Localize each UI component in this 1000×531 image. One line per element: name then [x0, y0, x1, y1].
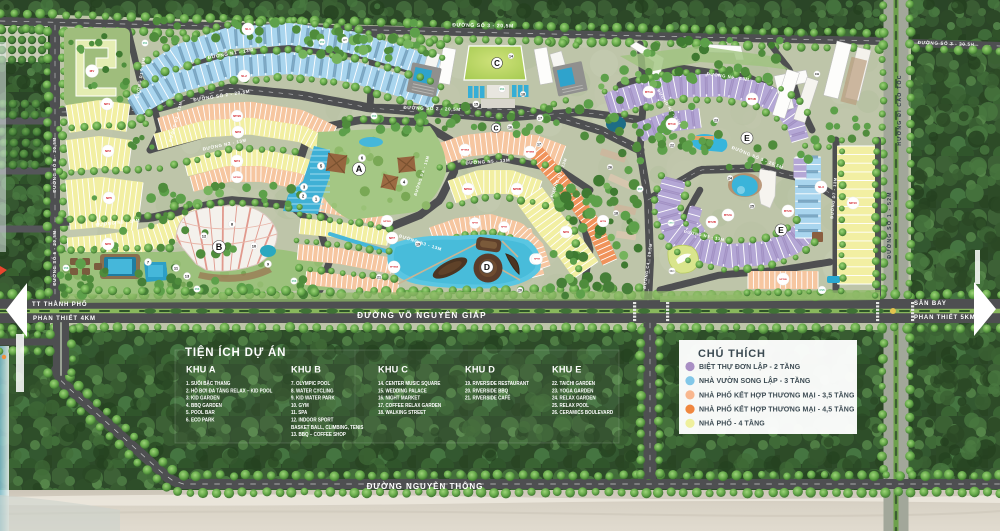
svg-text:CV2: CV2 [320, 42, 325, 44]
svg-text:D: D [484, 262, 490, 272]
svg-text:NPTM: NPTM [600, 221, 606, 223]
svg-text:6. ECO PARK: 6. ECO PARK [186, 417, 215, 424]
svg-text:NP1: NP1 [104, 102, 110, 106]
svg-text:5. POOL BAR: 5. POOL BAR [186, 410, 215, 417]
svg-text:1. SUỐI BẬC THANG: 1. SUỐI BẬC THANG [186, 379, 230, 387]
svg-text:NPTM: NPTM [534, 259, 540, 261]
svg-text:NP8A: NP8A [464, 187, 473, 191]
svg-text:CH: CH [815, 72, 819, 76]
svg-text:BT2C: BT2C [784, 209, 793, 213]
svg-text:KHU A: KHU A [186, 365, 216, 375]
svg-text:NP4: NP4 [234, 159, 240, 163]
svg-text:NP5: NP5 [106, 196, 112, 200]
svg-text:BT2A: BT2A [724, 213, 733, 217]
svg-text:NPTM5B: NPTM5B [526, 152, 535, 154]
svg-text:23: 23 [714, 118, 718, 122]
svg-text:CHÚ THÍCH: CHÚ THÍCH [698, 347, 766, 360]
svg-text:22. TAICHI GARDEN: 22. TAICHI GARDEN [552, 381, 595, 388]
svg-text:25. RELAX POOL: 25. RELAX POOL [552, 402, 590, 409]
svg-text:CV8: CV8 [64, 268, 69, 270]
svg-text:23. YOGA GARDEN: 23. YOGA GARDEN [552, 388, 594, 395]
svg-text:17: 17 [537, 142, 541, 146]
svg-text:BASKET BALL, CLIMBING, TENIS: BASKET BALL, CLIMBING, TENIS [291, 424, 364, 431]
svg-text:SL3: SL3 [818, 185, 824, 189]
svg-text:KHU D: KHU D [465, 365, 495, 375]
svg-text:ĐƯỜNG VÕ NGUYÊN GIÁP: ĐƯỜNG VÕ NGUYÊN GIÁP [357, 309, 487, 320]
svg-text:NP2: NP2 [105, 149, 111, 153]
svg-text:HƯỚNG ĐI CAO TỐC: HƯỚNG ĐI CAO TỐC [895, 74, 903, 145]
svg-text:15. WEDDING PALACE: 15. WEDDING PALACE [378, 388, 427, 395]
svg-text:NP3: NP3 [235, 130, 241, 134]
svg-text:CV1: CV1 [143, 43, 148, 45]
svg-text:CV6: CV6 [195, 289, 200, 291]
svg-text:ĐƯỜNG SỐ 5 - 20,5M: ĐƯỜNG SỐ 5 - 20,5M [52, 230, 57, 285]
svg-text:E: E [778, 225, 784, 235]
svg-text:26: 26 [608, 165, 612, 169]
svg-text:4. BBQ GARDEN: 4. BBQ GARDEN [186, 402, 222, 409]
svg-text:NPTM2: NPTM2 [233, 177, 241, 179]
svg-text:NP10: NP10 [849, 201, 857, 205]
svg-text:NPTM8: NPTM8 [779, 279, 787, 281]
svg-text:17: 17 [538, 116, 542, 120]
svg-text:7. OLYMPIC POOL: 7. OLYMPIC POOL [291, 381, 331, 388]
svg-text:10. GYM: 10. GYM [291, 402, 309, 409]
svg-text:17. COFFEE RELAX GARDEN: 17. COFFEE RELAX GARDEN [378, 402, 441, 409]
svg-text:A: A [356, 164, 363, 174]
svg-text:21. RIVERSIDE CAFÉ: 21. RIVERSIDE CAFÉ [465, 393, 511, 402]
svg-text:BT1B: BT1B [748, 97, 757, 101]
svg-text:C: C [494, 59, 500, 68]
svg-text:TT THÀNH PHỐ: TT THÀNH PHỐ [32, 301, 87, 308]
svg-text:16: 16 [508, 125, 512, 129]
svg-text:13: 13 [185, 273, 190, 278]
svg-text:24: 24 [728, 176, 732, 180]
svg-text:KHU B: KHU B [291, 365, 321, 375]
svg-text:BT1C: BT1C [668, 122, 677, 126]
svg-text:CV6: CV6 [292, 281, 297, 283]
svg-text:25: 25 [750, 204, 754, 208]
svg-text:24. RELAX GARDEN: 24. RELAX GARDEN [552, 395, 596, 402]
svg-text:22: 22 [670, 143, 674, 147]
svg-text:21: 21 [377, 275, 381, 279]
svg-text:3. KID GARDEN: 3. KID GARDEN [186, 395, 220, 402]
svg-text:TIỆN ÍCH DỰ ÁN: TIỆN ÍCH DỰ ÁN [185, 346, 286, 359]
svg-text:BT1A: BT1A [645, 90, 654, 94]
svg-text:18: 18 [521, 92, 525, 96]
svg-text:10: 10 [252, 243, 257, 248]
svg-text:NPTM4A: NPTM4A [390, 266, 399, 269]
svg-text:HT: HT [343, 38, 347, 42]
svg-text:NPTM5A: NPTM5A [461, 149, 470, 152]
svg-text:CV7: CV7 [638, 189, 643, 191]
svg-text:NPTM1: NPTM1 [233, 115, 242, 118]
svg-text:NPTM: NPTM [501, 227, 507, 229]
svg-text:BT2B: BT2B [708, 220, 717, 224]
svg-text:B: B [216, 242, 223, 252]
svg-text:CV5: CV5 [819, 288, 825, 292]
svg-text:CV3: CV3 [372, 116, 377, 118]
svg-text:8. WATER CYCLING: 8. WATER CYCLING [291, 388, 334, 395]
svg-text:NPTM: NPTM [472, 223, 478, 225]
svg-text:CV4: CV4 [500, 88, 505, 91]
svg-text:KHU E: KHU E [552, 365, 582, 375]
svg-text:15: 15 [474, 102, 478, 106]
svg-text:26. CERAMICS BOULEVARD: 26. CERAMICS BOULEVARD [552, 410, 613, 417]
svg-text:9. KID WATER PARK: 9. KID WATER PARK [291, 395, 335, 402]
svg-text:PHAN THIẾT 4KM: PHAN THIẾT 4KM [33, 315, 96, 322]
svg-text:18. WALKING STREET: 18. WALKING STREET [378, 410, 427, 417]
svg-text:11. SPA: 11. SPA [291, 410, 307, 417]
svg-text:16. NIGHT MARKET: 16. NIGHT MARKET [378, 395, 421, 402]
svg-text:NP9: NP9 [563, 230, 569, 234]
svg-text:2. HỒ BƠI ĐA TẦNG RELAX – KID: 2. HỒ BƠI ĐA TẦNG RELAX – KID POOL [186, 387, 273, 395]
svg-text:19: 19 [416, 242, 420, 246]
svg-text:KHU C: KHU C [378, 365, 408, 375]
svg-text:SL1: SL1 [245, 27, 251, 31]
svg-text:14. CENTER MUSIC SQUARE: 14. CENTER MUSIC SQUARE [378, 381, 441, 388]
svg-text:ĐƯỜNG SỐ 1 - 52M: ĐƯỜNG SỐ 1 - 52M [885, 191, 893, 258]
svg-text:13. BBQ – COFFEE SHOP: 13. BBQ – COFFEE SHOP [291, 432, 346, 439]
svg-text:12. INDOOR SPORT: 12. INDOOR SPORT [291, 417, 334, 424]
svg-text:NP6: NP6 [105, 242, 111, 246]
svg-text:ĐƯỜNG SỐ 5 - 20,5M: ĐƯỜNG SỐ 5 - 20,5M [52, 137, 57, 192]
svg-text:12: 12 [202, 233, 207, 238]
svg-text:NP8B: NP8B [513, 187, 522, 191]
svg-text:20: 20 [518, 288, 522, 292]
svg-text:18: 18 [614, 211, 618, 215]
svg-text:20. RIVERSIDE BBQ: 20. RIVERSIDE BBQ [465, 388, 508, 395]
svg-text:SÂN BAY: SÂN BAY [914, 300, 947, 307]
svg-text:E: E [744, 133, 750, 143]
svg-text:NP7: NP7 [389, 236, 395, 240]
svg-text:NPTM3: NPTM3 [383, 221, 391, 223]
svg-text:19. RIVERSIDE RESTAURANT: 19. RIVERSIDE RESTAURANT [465, 381, 530, 388]
svg-text:PHAN THIẾT 5KM: PHAN THIẾT 5KM [914, 314, 976, 321]
svg-text:C: C [493, 125, 498, 132]
svg-text:SL2: SL2 [241, 74, 247, 78]
svg-text:14: 14 [509, 54, 513, 58]
svg-text:ĐƯỜNG NGUYỄN THÔNG: ĐƯỜNG NGUYỄN THÔNG [367, 482, 484, 491]
svg-text:MH4: MH4 [670, 270, 676, 273]
svg-text:CV10: CV10 [668, 223, 674, 225]
